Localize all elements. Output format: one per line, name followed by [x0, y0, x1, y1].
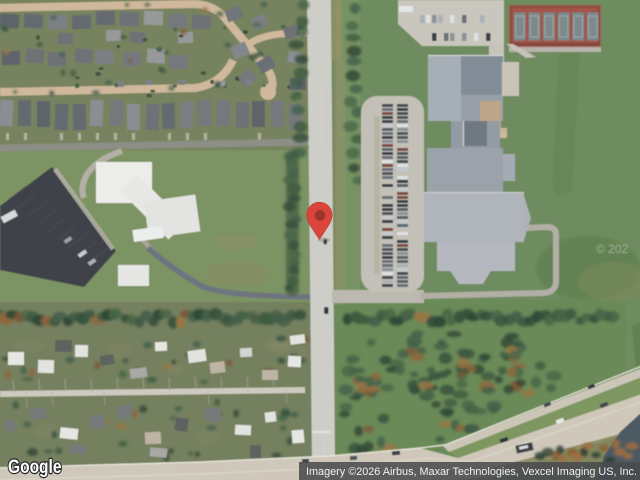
svg-text:Imagery ©2026 Airbus, Maxar Te: Imagery ©2026 Airbus, Maxar Technologies… [306, 466, 637, 478]
svg-text:© 202: © 202 [596, 242, 629, 256]
svg-text:Google: Google [8, 457, 62, 478]
